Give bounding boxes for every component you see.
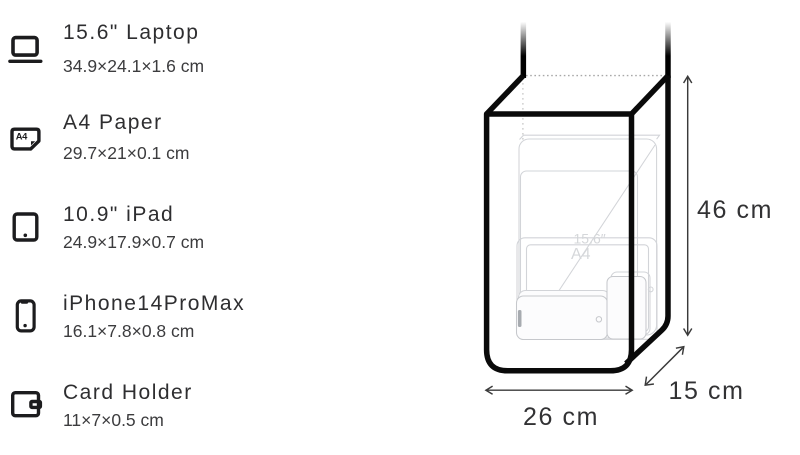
- svg-text:A4: A4: [16, 130, 28, 141]
- svg-text:A4: A4: [571, 246, 591, 263]
- svg-text:15.6″: 15.6″: [574, 231, 606, 247]
